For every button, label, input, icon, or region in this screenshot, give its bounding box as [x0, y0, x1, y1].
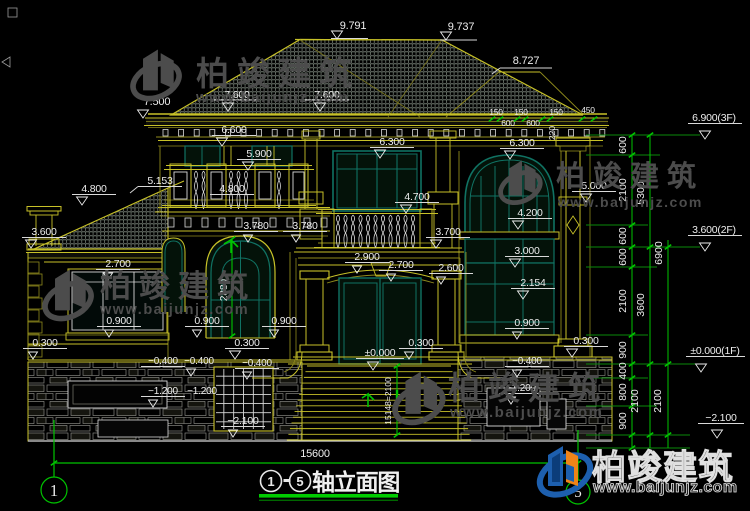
- svg-text:150: 150: [514, 107, 528, 117]
- svg-text:600: 600: [617, 227, 629, 245]
- svg-text:3.700: 3.700: [435, 226, 461, 238]
- svg-text:柏竣建筑: 柏竣建筑: [556, 159, 704, 193]
- svg-text:0.300: 0.300: [32, 337, 58, 349]
- svg-text:柏竣建筑: 柏竣建筑: [196, 55, 360, 92]
- svg-text:柏竣建筑: 柏竣建筑: [448, 370, 608, 406]
- svg-text:2100: 2100: [617, 289, 629, 313]
- svg-text:5.153: 5.153: [147, 175, 173, 187]
- svg-text:0.300: 0.300: [234, 337, 260, 349]
- svg-text:9.737: 9.737: [448, 21, 475, 33]
- svg-text:800: 800: [617, 383, 629, 401]
- svg-text:6900: 6900: [653, 241, 665, 265]
- svg-text:3.600: 3.600: [31, 226, 57, 238]
- svg-text:6.600: 6.600: [221, 124, 247, 136]
- svg-text:600: 600: [617, 248, 629, 266]
- svg-text:150: 150: [549, 107, 563, 117]
- svg-text:0.900: 0.900: [271, 315, 297, 327]
- svg-text:3600: 3600: [635, 293, 647, 317]
- svg-text:www.baijunjz.com: www.baijunjz.com: [99, 302, 249, 318]
- svg-text:15600: 15600: [300, 448, 330, 460]
- svg-text:±0.000: ±0.000: [365, 347, 396, 359]
- svg-text:5.900: 5.900: [246, 148, 272, 160]
- svg-text:150: 150: [489, 107, 503, 117]
- svg-text:4.800: 4.800: [81, 183, 107, 195]
- svg-text:1: 1: [50, 481, 59, 500]
- svg-text:600: 600: [526, 118, 540, 128]
- svg-text:−0.400: −0.400: [184, 356, 214, 367]
- svg-text:0.300: 0.300: [408, 337, 434, 349]
- svg-text:3.780: 3.780: [243, 220, 269, 232]
- svg-text:8.727: 8.727: [513, 55, 540, 67]
- svg-text:www.baijunjz.com: www.baijunjz.com: [592, 479, 738, 496]
- svg-text:2.154: 2.154: [520, 277, 546, 289]
- svg-text:6.900(3F): 6.900(3F): [692, 112, 736, 124]
- svg-text:0.300: 0.300: [573, 335, 599, 347]
- svg-text:600: 600: [617, 136, 629, 154]
- svg-text:9.791: 9.791: [340, 20, 367, 32]
- svg-text:4.700: 4.700: [404, 191, 430, 203]
- svg-text:−0.400: −0.400: [242, 358, 272, 369]
- svg-text:−0.400: −0.400: [148, 356, 178, 367]
- svg-text:600: 600: [501, 118, 515, 128]
- svg-text:轴立面图: 轴立面图: [312, 469, 399, 495]
- svg-text:−2.100: −2.100: [705, 412, 737, 424]
- svg-text:www.baijunjz.com: www.baijunjz.com: [449, 404, 603, 421]
- svg-text:0.900: 0.900: [514, 317, 540, 329]
- svg-text:−0.400: −0.400: [512, 356, 542, 367]
- svg-text:3.000: 3.000: [514, 245, 540, 257]
- svg-text:www.baijunjz.com: www.baijunjz.com: [195, 89, 349, 106]
- svg-text:−2.100: −2.100: [227, 415, 259, 427]
- svg-text:3.780: 3.780: [292, 220, 318, 232]
- svg-text:900: 900: [617, 412, 629, 430]
- svg-text:www.baijunjz.com: www.baijunjz.com: [557, 194, 703, 210]
- svg-text:−1.200: −1.200: [187, 386, 217, 397]
- svg-text:2.600: 2.600: [438, 262, 464, 274]
- svg-text:15148=2100: 15148=2100: [383, 377, 393, 425]
- svg-text:4.800: 4.800: [219, 183, 245, 195]
- svg-text:900: 900: [617, 341, 629, 359]
- svg-text:3.600(2F): 3.600(2F): [692, 224, 736, 236]
- svg-text:2100: 2100: [629, 389, 641, 413]
- svg-text:柏竣建筑: 柏竣建筑: [100, 269, 256, 304]
- svg-text:5: 5: [296, 474, 303, 489]
- svg-text:400: 400: [617, 362, 629, 380]
- svg-text:450: 450: [581, 105, 595, 115]
- svg-text:6.300: 6.300: [509, 137, 535, 149]
- svg-text:2100: 2100: [652, 389, 664, 413]
- svg-text:2.900: 2.900: [354, 251, 380, 263]
- svg-text:220: 220: [547, 126, 557, 140]
- svg-text:−1.200: −1.200: [148, 386, 178, 397]
- svg-text:4.200: 4.200: [517, 207, 543, 219]
- svg-text:1: 1: [267, 474, 274, 489]
- svg-text:2.700: 2.700: [388, 259, 414, 271]
- svg-text:6.300: 6.300: [379, 136, 405, 148]
- svg-text:±0.000(1F): ±0.000(1F): [690, 345, 739, 357]
